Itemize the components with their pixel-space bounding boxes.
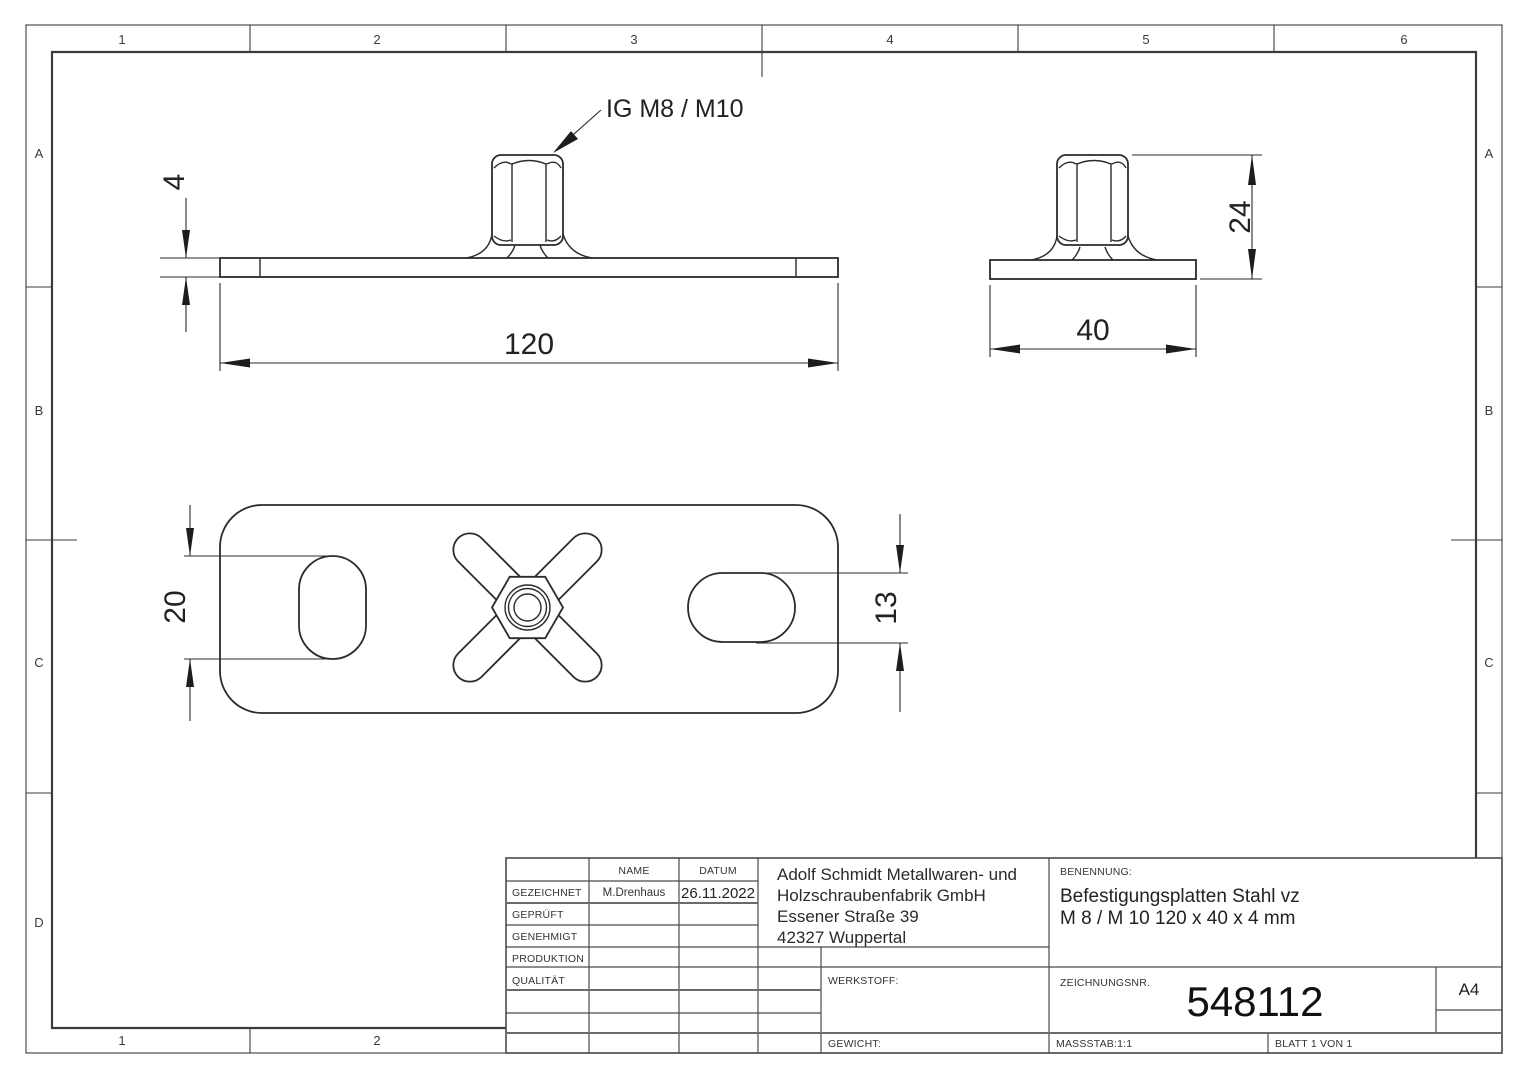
company-line-1: Adolf Schmidt Metallwaren- und (777, 865, 1017, 884)
gezeichnet-date: 26.11.2022 (681, 885, 755, 902)
gewicht-label: GEWICHT: (828, 1038, 881, 1050)
zeichnungsnr-label: ZEICHNUNGSNR. (1060, 977, 1150, 989)
thread-callout-label: IG M8 / M10 (606, 95, 744, 123)
dim-width: 40 (990, 285, 1196, 357)
drawing-number: 548112 (1186, 978, 1323, 1025)
massstab-label: MASSSTAB:1:1 (1056, 1038, 1132, 1050)
dim-thickness-label: 4 (158, 174, 191, 191)
front-nut (492, 155, 563, 245)
weld-fillet-right (1128, 236, 1157, 260)
col-datum-header: DATUM (699, 865, 737, 877)
zone-row-a-right: A (1485, 146, 1494, 161)
dim-width-label: 40 (1076, 314, 1109, 347)
format-label: A4 (1459, 980, 1480, 999)
zone-row-b: B (35, 403, 44, 418)
front-view: 4 120 IG M8 / M10 (158, 95, 838, 371)
part-title-line-2: M 8 / M 10 120 x 40 x 4 mm (1060, 908, 1295, 929)
drawing-canvas: 1 2 3 4 5 6 1 2 A B C D A B C (0, 0, 1528, 1080)
title-block: NAME DATUM GEZEICHNET M.Drenhaus 26.11.2… (506, 858, 1502, 1053)
row-genehmigt-label: GENEHMIGT (512, 931, 578, 943)
zone-row-a: A (35, 146, 44, 161)
dim-slot-width: 13 (756, 514, 908, 712)
inner-frame (52, 52, 1476, 1028)
row-gezeichnet-label: GEZEICHNET (512, 887, 582, 899)
weld-fillet-left (466, 234, 492, 258)
weld-fillet-left (1031, 236, 1057, 260)
row-produktion-label: PRODUKTION (512, 953, 584, 965)
dim-height-label: 24 (1224, 200, 1257, 233)
weld-fillet-right (563, 234, 592, 258)
slot-left (299, 556, 366, 659)
zone-col-5: 5 (1142, 32, 1149, 47)
dim-length-label: 120 (504, 328, 554, 361)
zone-row-b-right: B (1485, 403, 1494, 418)
dim-thickness: 4 (158, 174, 220, 332)
part-title-line-1: Befestigungsplatten Stahl vz (1060, 886, 1300, 907)
zone-col-4: 4 (886, 32, 893, 47)
benennung-label: BENENNUNG: (1060, 866, 1132, 878)
zone-row-d: D (34, 915, 43, 930)
blatt-label: BLATT 1 VON 1 (1275, 1038, 1353, 1050)
zone-row-c: C (34, 655, 43, 670)
dim-slot-width-label: 13 (870, 591, 903, 624)
zone-col-2: 2 (373, 32, 380, 47)
row-qualitaet-label: QUALITÄT (512, 975, 565, 987)
zone-col-1: 1 (118, 32, 125, 47)
thread-callout: IG M8 / M10 (553, 95, 744, 153)
side-plate (990, 260, 1196, 279)
dim-length: 120 (220, 283, 838, 371)
plan-view: 20 13 (159, 505, 908, 721)
zone-row-c-right: C (1484, 655, 1493, 670)
slot-right (688, 573, 795, 642)
col-name-header: NAME (618, 865, 649, 877)
front-plate (220, 258, 838, 277)
side-nut (1057, 155, 1128, 245)
zone-col-bottom-1: 1 (118, 1033, 125, 1048)
company-line-4: 42327 Wuppertal (777, 928, 906, 947)
gezeichnet-name: M.Drenhaus (603, 887, 666, 899)
zone-col-3: 3 (630, 32, 637, 47)
dim-slot-length: 20 (159, 505, 334, 721)
werkstoff-label: WERKSTOFF: (828, 975, 899, 987)
side-view: 24 40 (990, 155, 1262, 357)
row-geprueft-label: GEPRÜFT (512, 909, 564, 921)
dim-slot-length-label: 20 (159, 590, 192, 623)
company-line-3: Essener Straße 39 (777, 907, 919, 926)
zone-col-bottom-2: 2 (373, 1033, 380, 1048)
zone-col-6: 6 (1400, 32, 1407, 47)
company-line-2: Holzschraubenfabrik GmbH (777, 886, 986, 905)
drawing-sheet: 1 2 3 4 5 6 1 2 A B C D A B C (0, 0, 1528, 1080)
